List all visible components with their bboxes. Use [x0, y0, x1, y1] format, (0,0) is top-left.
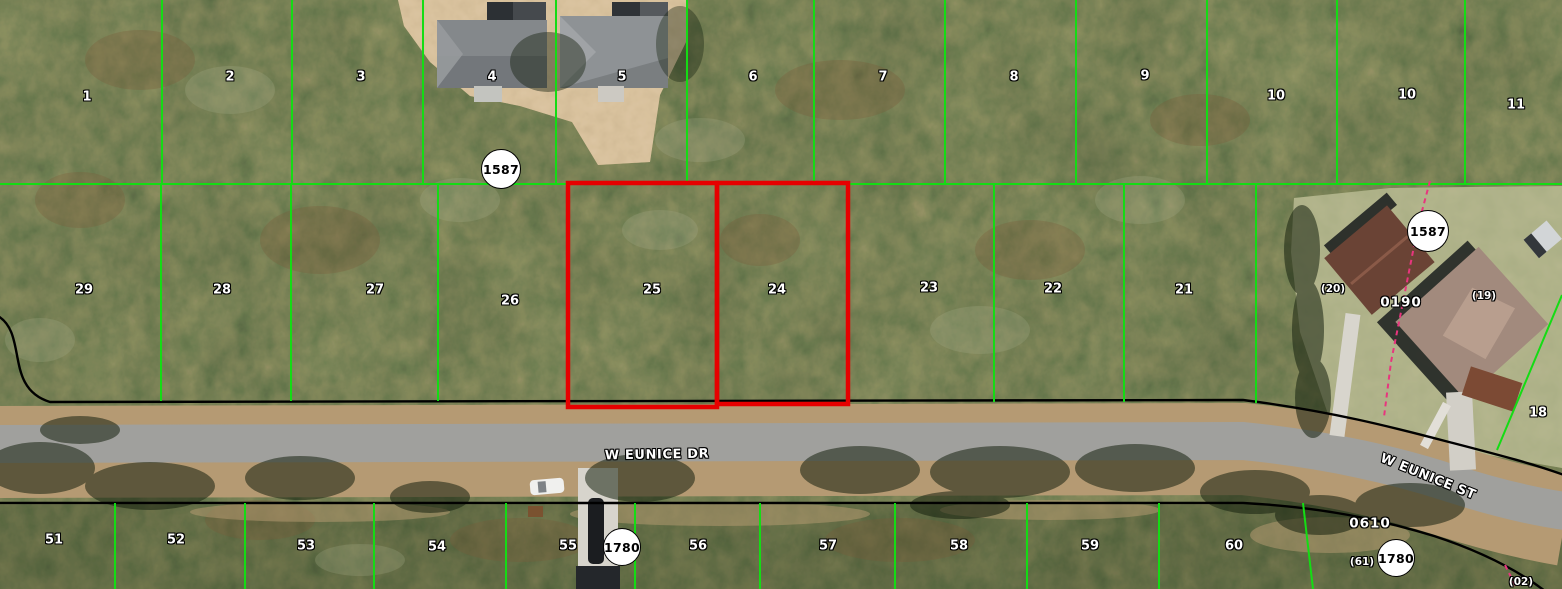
gis-map-viewport[interactable]: 123456789101011292827262524232221(20)(19… [0, 0, 1562, 589]
aerial-basemap [0, 0, 1562, 589]
shed-small [528, 506, 543, 517]
boat [588, 498, 604, 564]
car [529, 478, 564, 496]
bottom-house-roof [576, 566, 620, 589]
